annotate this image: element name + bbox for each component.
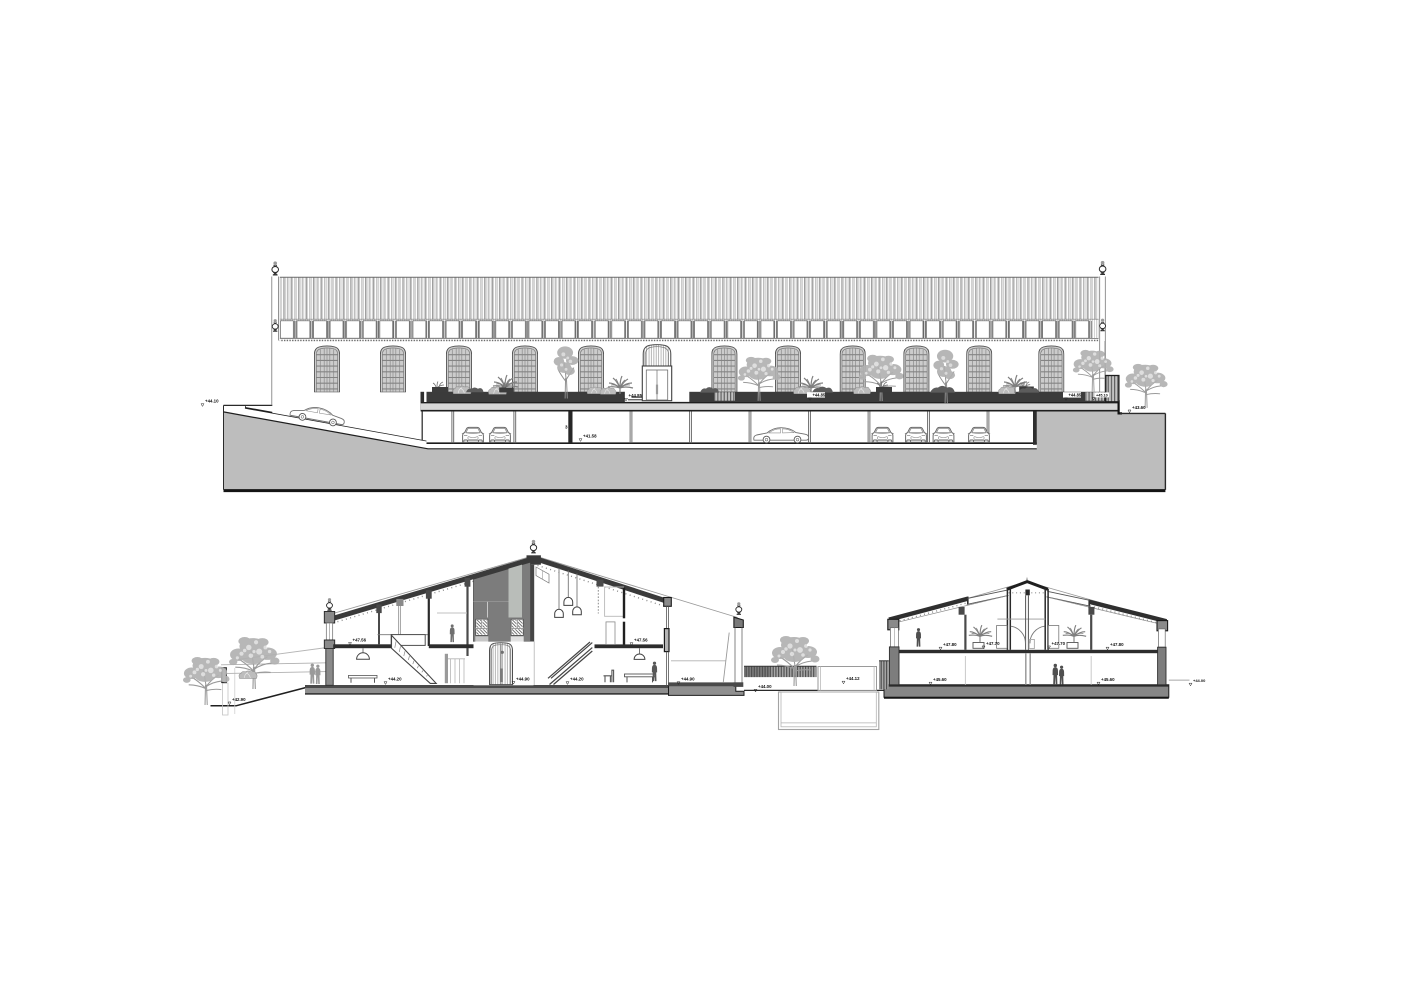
svg-text:+44.00: +44.00 [758, 684, 772, 689]
svg-text:+44.10: +44.10 [205, 399, 219, 404]
svg-text:+47.56: +47.56 [634, 638, 648, 643]
svg-text:+44.12: +44.12 [846, 676, 860, 681]
svg-text:+44.00: +44.00 [1193, 678, 1206, 683]
svg-text:+47.80: +47.80 [1110, 642, 1124, 647]
svg-text:+44.85: +44.85 [629, 393, 643, 398]
svg-text:+41.58: +41.58 [583, 434, 597, 439]
svg-text:+42.90: +42.90 [232, 697, 246, 702]
svg-text:+45.10: +45.10 [1096, 393, 1108, 397]
svg-text:+45.60: +45.60 [1101, 677, 1115, 682]
svg-text:+47.70: +47.70 [1052, 641, 1066, 646]
svg-text:3: 3 [565, 425, 568, 430]
svg-text:+47.80: +47.80 [943, 642, 957, 647]
svg-text:+47.56: +47.56 [353, 637, 367, 642]
svg-text:+45.60: +45.60 [933, 677, 947, 682]
svg-text:+44.90: +44.90 [681, 677, 695, 682]
svg-text:+43.60: +43.60 [1132, 405, 1146, 410]
svg-text:+44.85: +44.85 [1069, 393, 1082, 398]
svg-text:+44.20: +44.20 [388, 677, 402, 682]
svg-text:+47.70: +47.70 [986, 641, 1000, 646]
svg-text:+44.20: +44.20 [570, 677, 584, 682]
svg-text:+44.85: +44.85 [813, 393, 826, 398]
svg-text:+44.90: +44.90 [516, 676, 530, 681]
